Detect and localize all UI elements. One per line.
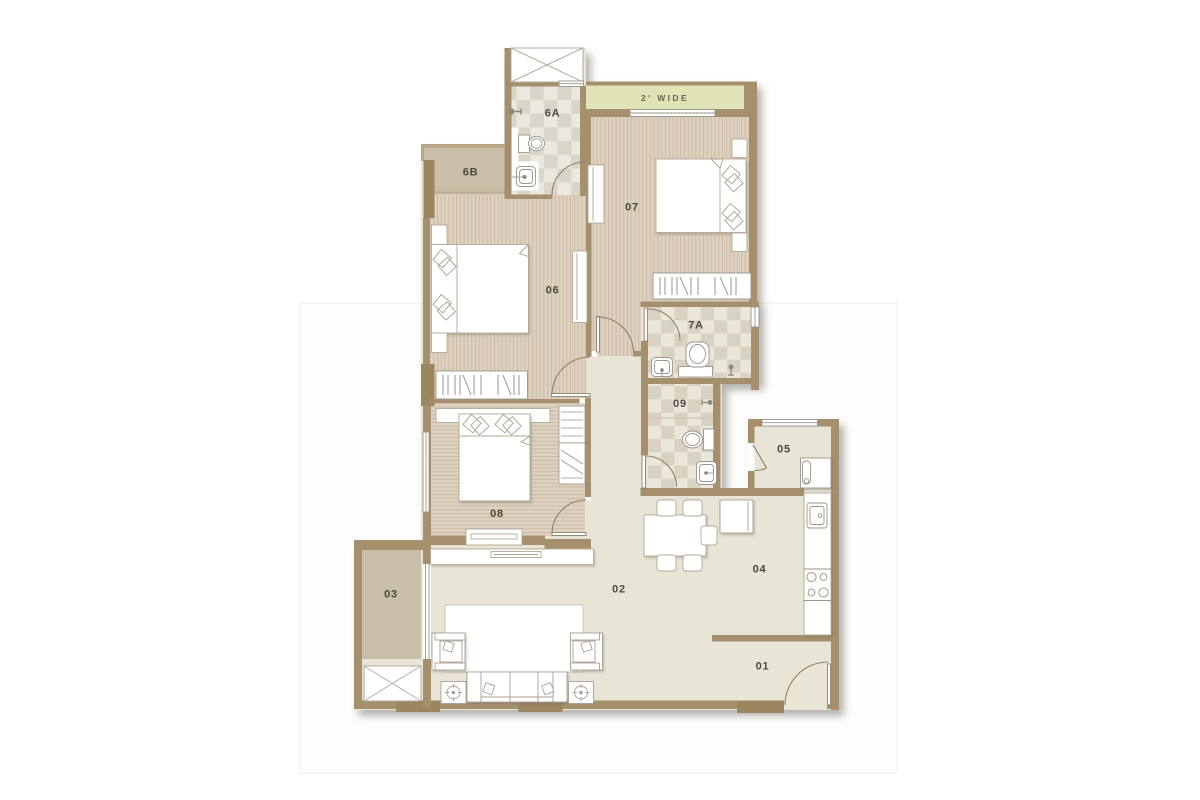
svg-text:04: 04	[753, 564, 767, 576]
svg-text:01: 01	[756, 661, 770, 673]
svg-text:6B: 6B	[463, 167, 478, 179]
svg-text:2' WIDE: 2' WIDE	[641, 93, 689, 103]
svg-text:09: 09	[673, 398, 687, 410]
svg-text:6A: 6A	[545, 108, 560, 120]
svg-text:7A: 7A	[688, 320, 703, 332]
svg-text:02: 02	[612, 584, 626, 596]
svg-text:05: 05	[777, 444, 791, 456]
svg-text:06: 06	[546, 285, 560, 297]
svg-text:08: 08	[490, 508, 504, 520]
svg-text:07: 07	[625, 202, 639, 214]
svg-text:03: 03	[384, 589, 398, 601]
